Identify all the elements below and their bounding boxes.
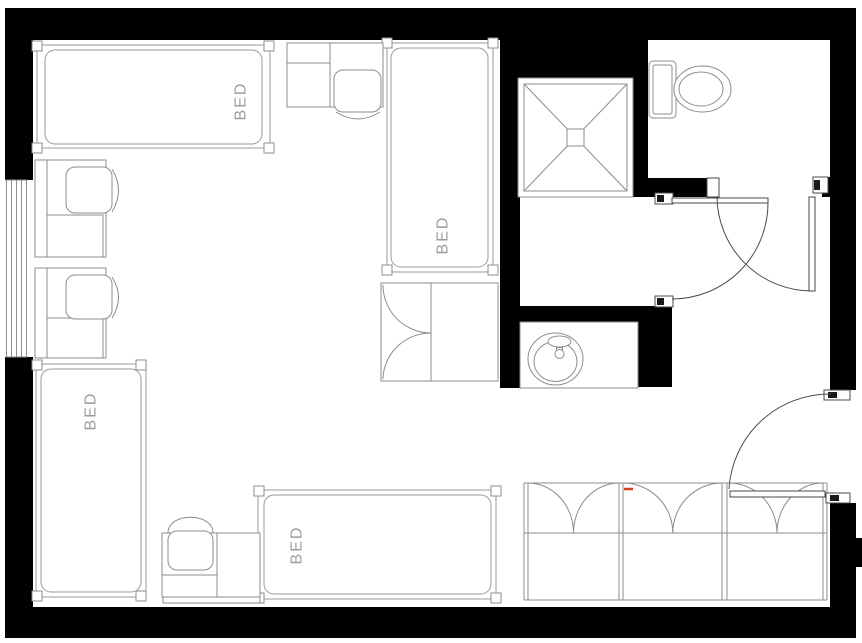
window-opening <box>5 180 33 357</box>
door-leaf <box>672 198 768 203</box>
desk-chair-unit-left-1 <box>35 160 119 257</box>
chair <box>334 70 381 112</box>
bed-bottom-left: BED <box>32 360 146 601</box>
doorway-jamb <box>707 178 719 197</box>
shower-drain <box>567 129 584 146</box>
shower-stall <box>518 78 633 197</box>
entry-door-jamb-top <box>824 390 850 400</box>
bed-label: BED <box>83 392 100 431</box>
wall-right-upper <box>830 8 856 390</box>
wall-left-lower <box>5 357 33 638</box>
desk-chair-unit-left-2 <box>35 268 119 358</box>
chair <box>66 167 112 213</box>
wall-toilet-room-left <box>633 40 648 178</box>
wall-right-pilaster <box>846 538 862 567</box>
bed-bottom-middle: BED <box>254 486 501 603</box>
bathroom-door-jamb-top <box>655 193 673 204</box>
sink-vanity <box>520 322 638 388</box>
bed-label: BED <box>233 82 250 121</box>
sink-faucet <box>548 336 571 347</box>
wall-top <box>5 8 856 40</box>
bed-label: BED <box>435 216 452 255</box>
floor-plan-svg: BED BED BED BED <box>0 0 862 643</box>
wall-bottom <box>5 607 856 638</box>
wall-left-upper <box>5 8 33 180</box>
mattress <box>45 50 262 144</box>
door-leaf <box>730 491 825 497</box>
toilet-room-door-jamb <box>813 177 828 193</box>
wall-sink-alcove-right <box>638 322 672 387</box>
entry-door-jamb-bottom <box>826 493 850 503</box>
wall-sink-alcove-top <box>520 306 672 322</box>
wall-above-shower <box>518 40 633 78</box>
window <box>5 180 33 357</box>
floor-plan-page: BED BED BED BED <box>0 0 862 643</box>
chair <box>66 275 112 319</box>
bathroom-door-jamb-bottom <box>655 296 673 307</box>
bed-top-left: BED <box>32 41 274 153</box>
chair <box>168 531 213 570</box>
door-leaf <box>809 197 815 291</box>
wardrobe-cabinet <box>381 283 498 381</box>
bed-top-middle: BED <box>382 38 498 275</box>
bed-label: BED <box>289 526 306 565</box>
wall-right-lower <box>830 503 856 638</box>
wall-room-divider <box>500 40 520 388</box>
